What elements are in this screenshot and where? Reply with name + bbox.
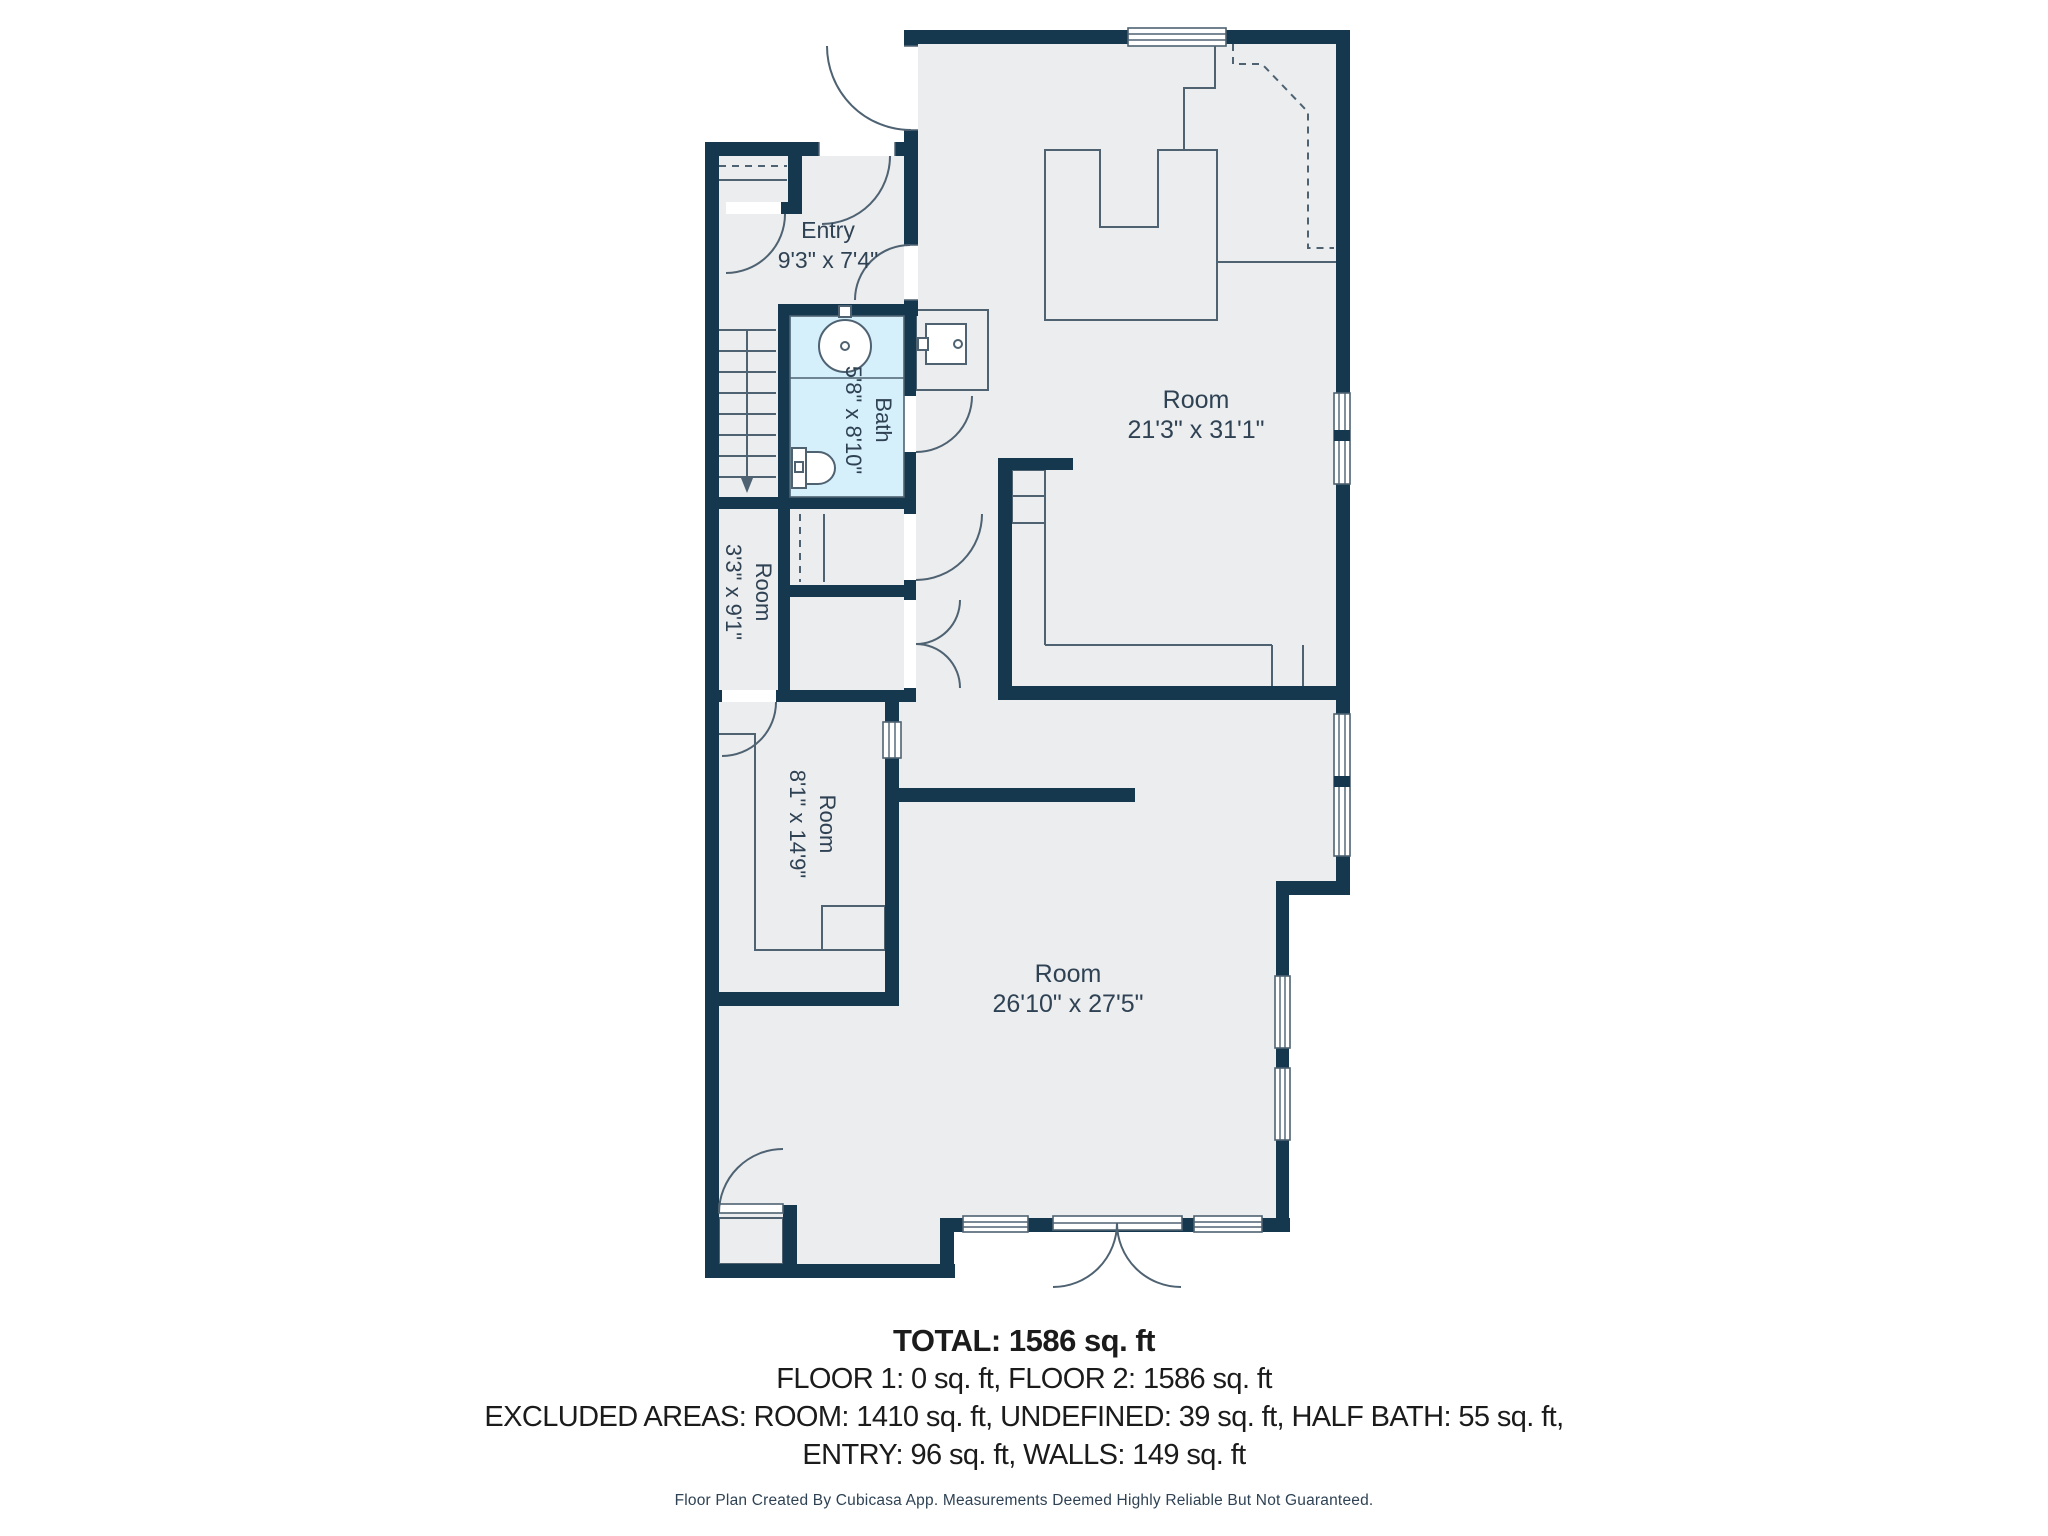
window-bottom-1 <box>963 1216 1028 1232</box>
room-dims-mid: 8'1" x 14'9" <box>785 770 810 878</box>
room-label-mid: Room <box>815 795 840 854</box>
window-top <box>1128 28 1226 46</box>
room-label-entry: Entry <box>801 217 855 243</box>
disclaimer: Floor Plan Created By Cubicasa App. Meas… <box>0 1492 2048 1510</box>
window-right-lower-1 <box>1275 976 1290 1048</box>
room-dims-entry: 9'3" x 7'4" <box>778 247 879 273</box>
room-dims-small: 3'3" x 9'1" <box>721 544 746 640</box>
room-dims-bath: 5'8" x 8'10" <box>841 366 866 474</box>
excluded-areas-line-2: ENTRY: 96 sq. ft, WALLS: 149 sq. ft <box>0 1436 2048 1474</box>
area-summary: TOTAL: 1586 sq. ft FLOOR 1: 0 sq. ft, FL… <box>0 1322 2048 1474</box>
room-label-small: Room <box>751 563 776 622</box>
room-dims-main-upper: 21'3" x 31'1" <box>1127 416 1264 444</box>
door-swing-french-right <box>1117 1223 1181 1287</box>
window-bottom-2 <box>1194 1216 1262 1232</box>
excluded-areas-line-1: EXCLUDED AREAS: ROOM: 1410 sq. ft, UNDEF… <box>0 1398 2048 1436</box>
window-sidelight <box>883 722 901 758</box>
door-swing-french-left <box>1053 1223 1117 1287</box>
room-label-main-upper: Room <box>1163 386 1230 414</box>
floorplan-drawing: Entry 9'3" x 7'4" Bath 5'8" x 8'10" Room… <box>0 0 2048 1320</box>
room-label-bath: Bath <box>871 397 896 442</box>
floorplan-page: Entry 9'3" x 7'4" Bath 5'8" x 8'10" Room… <box>0 0 2048 1536</box>
room-label-main-lower: Room <box>1035 960 1102 988</box>
window-right-lower-2 <box>1275 1068 1290 1140</box>
exterior-door-leaf <box>719 1204 783 1213</box>
floor-areas-line: FLOOR 1: 0 sq. ft, FLOOR 2: 1586 sq. ft <box>0 1360 2048 1398</box>
room-dims-main-lower: 26'10" x 27'5" <box>992 990 1143 1018</box>
total-area: TOTAL: 1586 sq. ft <box>0 1322 2048 1360</box>
door-swing-exterior-top <box>827 46 911 130</box>
